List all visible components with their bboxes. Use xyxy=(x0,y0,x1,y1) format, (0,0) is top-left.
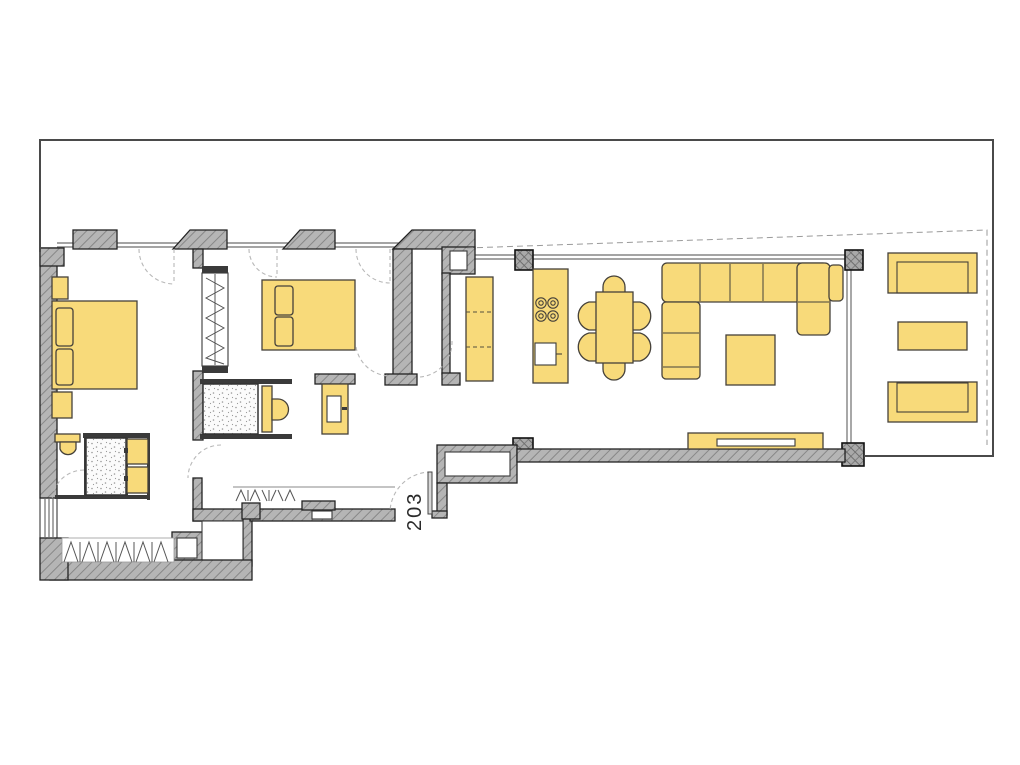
faucet-icon xyxy=(342,407,347,410)
toilet-bowl xyxy=(60,442,76,455)
dining-chair xyxy=(603,276,625,294)
vanity-basin xyxy=(127,467,148,493)
master-bedroom xyxy=(52,277,137,418)
site-boundary xyxy=(40,140,993,456)
south-closet-body xyxy=(62,538,174,562)
floor-plan-drawing: 203 xyxy=(0,0,1020,765)
south-wall-west xyxy=(50,560,252,580)
faucet-icon xyxy=(124,448,128,453)
niche-opening xyxy=(177,538,197,558)
hall-washbasin xyxy=(315,374,355,434)
second-bedroom xyxy=(262,280,355,350)
wardrobe-closet xyxy=(202,266,228,373)
vestibule-wall-left xyxy=(437,483,447,515)
pillow xyxy=(275,317,293,346)
unit-number-label: 203 xyxy=(404,492,426,531)
north-pier-4 xyxy=(393,230,475,249)
wall-A-foot xyxy=(385,374,417,385)
washbasin-sink xyxy=(327,396,341,422)
hall-wall-step xyxy=(302,501,335,510)
door-arc-bedroom2 xyxy=(356,347,391,376)
living-room xyxy=(662,263,843,449)
vestibule-stub xyxy=(432,511,447,518)
dining-chair xyxy=(603,362,625,380)
dining-chair xyxy=(578,333,597,361)
column-north-2 xyxy=(845,250,863,270)
vestibule-opening xyxy=(445,452,510,476)
hall-pier xyxy=(242,503,260,519)
shower-tray xyxy=(203,384,258,434)
ensuite-bathroom xyxy=(55,434,148,495)
living-glass-facade-east xyxy=(847,270,851,443)
shaft-room xyxy=(202,521,243,566)
tv-sideboard-slot xyxy=(717,439,795,446)
column-north-1 xyxy=(515,250,533,270)
pillow xyxy=(56,349,73,385)
nightstand xyxy=(52,392,72,418)
south-closet-rail xyxy=(64,542,168,562)
pillow xyxy=(56,308,73,346)
shower-tray xyxy=(86,438,126,495)
kitchen-island xyxy=(533,269,568,383)
bedroom-divider-top xyxy=(193,249,203,268)
entry-door-leaf xyxy=(428,472,432,514)
site-lines xyxy=(40,140,993,456)
terrace-side-table xyxy=(898,322,967,350)
pillow xyxy=(275,286,293,315)
kitchen-wall-counter xyxy=(466,277,493,381)
north-pier-2 xyxy=(173,230,227,249)
door-arc-bathroom2 xyxy=(188,445,221,478)
door-arc-bedroom1-window xyxy=(139,249,174,284)
terrace xyxy=(888,253,977,422)
north-pier-1 xyxy=(73,230,117,249)
dining-set xyxy=(578,276,650,380)
wardrobe-top-bar xyxy=(202,266,228,273)
island-sink xyxy=(535,343,556,365)
hall-wall-slot xyxy=(312,511,332,519)
dining-chair xyxy=(632,333,651,361)
sun-lounger xyxy=(888,253,977,293)
washbasin-counter xyxy=(315,374,355,384)
dining-chair xyxy=(578,302,597,330)
sofa-right-chaise xyxy=(797,263,830,335)
wall-B-foot xyxy=(442,373,460,385)
north-pier-3 xyxy=(283,230,335,249)
toilet-bowl xyxy=(272,399,289,420)
sun-lounger xyxy=(888,382,977,422)
toilet-tank xyxy=(55,434,80,442)
wardrobe-bottom-bar xyxy=(202,366,228,373)
wall-A-bedroom2-east xyxy=(393,249,412,376)
hall-closet-rail xyxy=(236,490,295,501)
northwest-corner-step xyxy=(40,248,64,266)
vanity-basin xyxy=(127,439,148,464)
faucet-icon xyxy=(124,476,128,481)
kitchen-corner-niche xyxy=(450,251,467,270)
kitchen xyxy=(466,269,568,383)
floor-plan-canvas: 203 xyxy=(0,0,1020,765)
door-arc-hall-window xyxy=(356,249,390,283)
second-bathroom xyxy=(203,384,289,434)
living-south-wall xyxy=(517,449,845,462)
coffee-table xyxy=(726,335,775,385)
nightstand xyxy=(52,277,68,299)
toilet-tank xyxy=(262,386,272,432)
door-arc-bedroom2-window xyxy=(249,249,277,277)
dining-chair xyxy=(632,302,651,330)
sofa-armrest xyxy=(829,265,843,301)
wall-B-kitchen-west xyxy=(442,273,450,374)
dining-table xyxy=(596,292,633,363)
